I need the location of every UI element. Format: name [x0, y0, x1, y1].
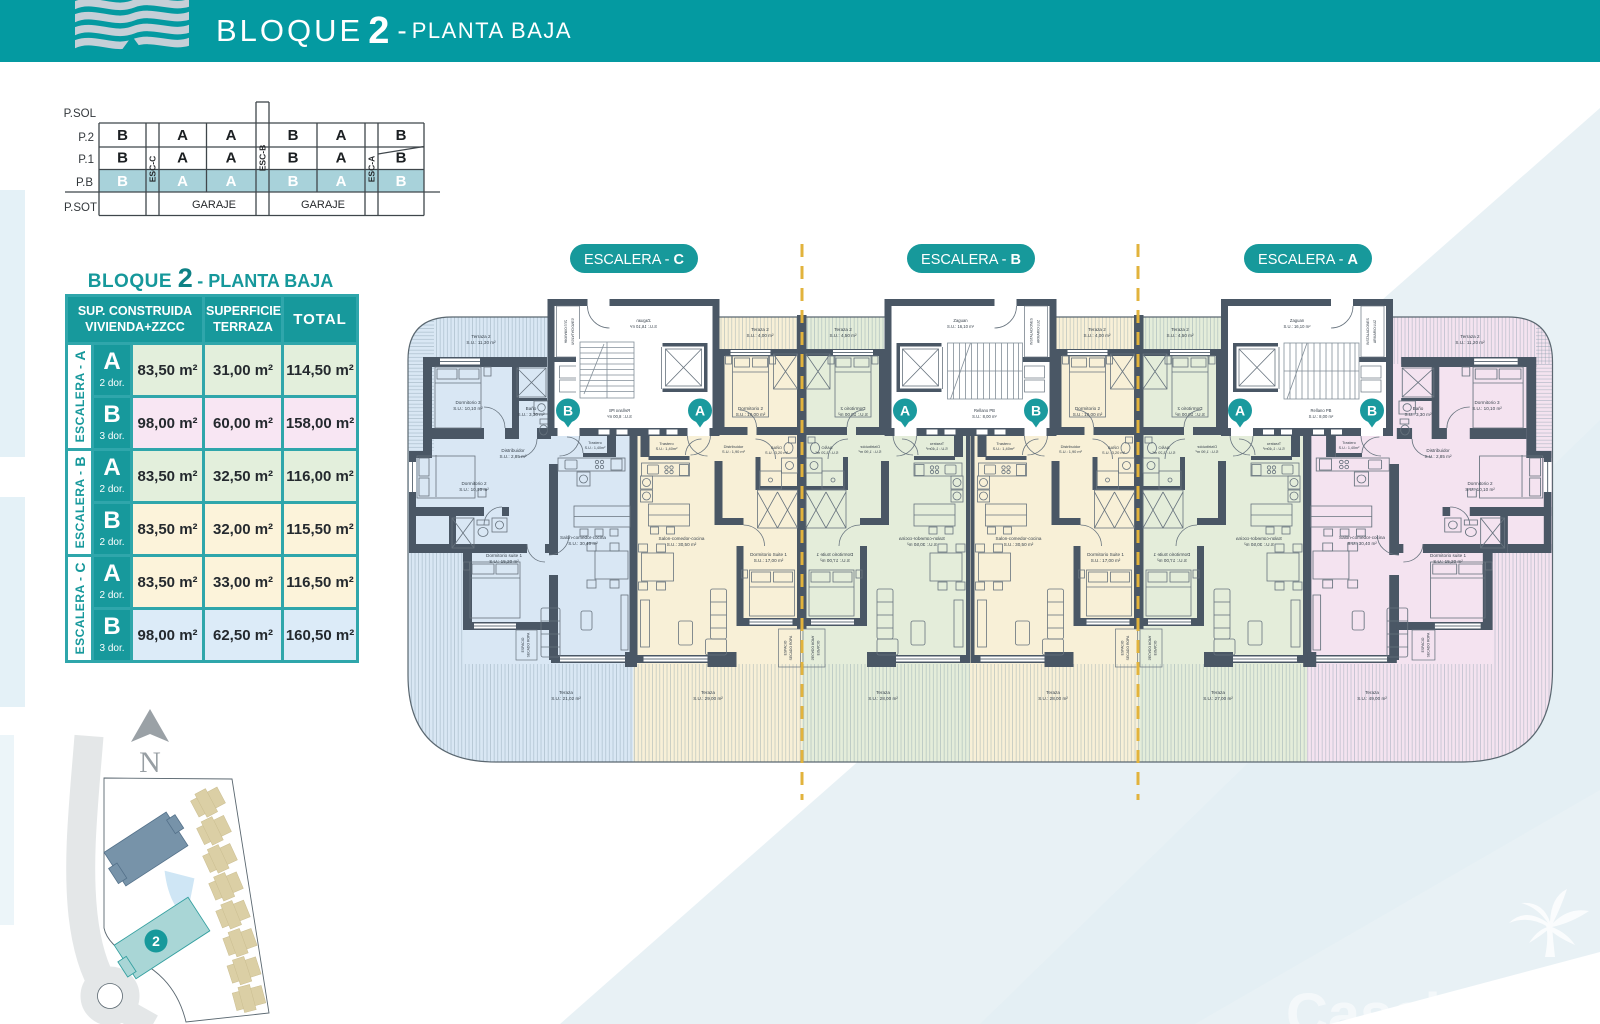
svg-text:P.SOL: P.SOL [64, 108, 97, 120]
svg-text:S.U.: 4,50 m²: S.U.: 4,50 m² [829, 333, 857, 338]
svg-text:S.U.: 30,40 m²: S.U.: 30,40 m² [1347, 541, 1377, 546]
svg-text:Teraza: Teraza [1365, 690, 1379, 695]
svg-text:Dormitorio suite 1: Dormitorio suite 1 [1430, 553, 1466, 558]
svg-text:S.U.: 11,20 m²: S.U.: 11,20 m² [1455, 340, 1485, 345]
svg-text:S.U.: 10,10 m²: S.U.: 10,10 m² [1465, 487, 1495, 492]
svg-text:B: B [117, 127, 128, 144]
svg-text:S.U.: 30,40 m²: S.U.: 30,40 m² [568, 541, 598, 546]
svg-text:ESCALERA - C: ESCALERA - C [584, 252, 684, 268]
svg-text:A: A [177, 173, 188, 190]
svg-text:A: A [177, 150, 188, 167]
svg-text:S.U.: 28,00 m²: S.U.: 28,00 m² [868, 696, 898, 701]
svg-text:S.U.: 4,00 m²: S.U.: 4,00 m² [1083, 333, 1111, 338]
svg-text:P.2: P.2 [78, 132, 94, 144]
svg-text:S.U.: 4,50 m²: S.U.: 4,50 m² [1166, 333, 1194, 338]
svg-text:B: B [396, 150, 407, 167]
svg-text:Teraza 2: Teraza 2 [1171, 327, 1189, 332]
svg-text:Baño: Baño [526, 406, 537, 411]
svg-text:S.U.: 15,20 m²: S.U.: 15,20 m² [489, 559, 519, 564]
svg-text:Dormitorio 3: Dormitorio 3 [1474, 400, 1499, 405]
svg-text:B: B [396, 173, 407, 190]
svg-text:A: A [226, 150, 237, 167]
svg-text:S.U.: 49,00 m²: S.U.: 49,00 m² [1357, 696, 1387, 701]
svg-text:Teraza 2: Teraza 2 [834, 327, 852, 332]
svg-text:ESC-C: ESC-C [148, 156, 158, 182]
svg-text:N: N [139, 746, 161, 779]
svg-text:ESC-A: ESC-A [367, 156, 377, 182]
svg-text:P.1: P.1 [78, 154, 94, 166]
svg-text:Dormitorio suite 1: Dormitorio suite 1 [486, 553, 522, 558]
svg-text:B: B [1031, 403, 1041, 419]
svg-text:GARAJE: GARAJE [301, 199, 345, 211]
svg-text:ESCALERA - B: ESCALERA - B [921, 252, 1021, 268]
svg-text:A: A [1235, 403, 1245, 419]
svg-text:Teraza: Teraza [876, 690, 890, 695]
svg-text:Teraza: Teraza [1211, 690, 1225, 695]
svg-text:Trastero: Trastero [588, 441, 602, 445]
svg-text:A: A [336, 127, 347, 144]
svg-text:S.U.: 4,00 m²: S.U.: 4,00 m² [746, 333, 774, 338]
svg-text:S.U.: 10,10 m²: S.U.: 10,10 m² [1472, 406, 1502, 411]
svg-text:SECADO ROPA: SECADO ROPA [1427, 632, 1431, 657]
svg-text:S.U.: 10,10 m²: S.U.: 10,10 m² [453, 406, 483, 411]
svg-text:Distribuidor: Distribuidor [1426, 448, 1450, 453]
svg-text:A: A [226, 127, 237, 144]
svg-text:2: 2 [152, 933, 160, 949]
svg-text:B: B [117, 150, 128, 167]
svg-text:ESCALERA - A: ESCALERA - A [1258, 252, 1358, 268]
svg-text:S.U.: 21,02 m²: S.U.: 21,02 m² [551, 696, 581, 701]
svg-text:B: B [563, 403, 573, 419]
svg-text:Terraza 2: Terraza 2 [471, 334, 491, 339]
svg-text:Dormitorio 2: Dormitorio 2 [461, 481, 486, 486]
svg-text:S.U.: 3,30 m²: S.U.: 3,30 m² [1404, 412, 1432, 417]
svg-text:A: A [900, 403, 910, 419]
svg-text:S.U.: 27,00 m²: S.U.: 27,00 m² [1203, 696, 1233, 701]
svg-text:Teraza: Teraza [559, 690, 573, 695]
svg-text:S.U.: 1,40m²: S.U.: 1,40m² [1339, 446, 1360, 450]
svg-text:A: A [695, 403, 705, 419]
svg-text:Teraza 2: Teraza 2 [751, 327, 769, 332]
svg-text:P.SOT: P.SOT [64, 202, 97, 214]
svg-text:ESPACIO: ESPACIO [521, 637, 525, 652]
svg-text:Distribuidor: Distribuidor [501, 448, 525, 453]
svg-text:S.U.: 10,10 m²: S.U.: 10,10 m² [459, 487, 489, 492]
svg-text:S.U.: 2,85 m²: S.U.: 2,85 m² [499, 454, 527, 459]
svg-text:Baño: Baño [1413, 406, 1424, 411]
svg-text:ESPACIO: ESPACIO [1421, 637, 1425, 652]
svg-text:S.U.: 2,85 m²: S.U.: 2,85 m² [1424, 454, 1452, 459]
svg-text:A: A [336, 150, 347, 167]
svg-text:S.U.: 28,00 m²: S.U.: 28,00 m² [1038, 696, 1068, 701]
svg-text:Dormitorio 2: Dormitorio 2 [1467, 481, 1492, 486]
svg-text:B: B [288, 127, 299, 144]
svg-text:B: B [117, 173, 128, 190]
svg-text:SECADO ROPA: SECADO ROPA [527, 632, 531, 657]
svg-text:A: A [336, 173, 347, 190]
svg-text:B: B [288, 173, 299, 190]
svg-text:B: B [396, 127, 407, 144]
svg-text:Dormitorio 3: Dormitorio 3 [455, 400, 480, 405]
svg-text:Casal: Casal [1286, 982, 1441, 1024]
svg-text:B: B [288, 150, 299, 167]
svg-text:Teraza: Teraza [1046, 690, 1060, 695]
svg-text:S.U.: 15,20 m²: S.U.: 15,20 m² [1433, 559, 1463, 564]
svg-text:A: A [177, 127, 188, 144]
svg-text:P.B: P.B [76, 177, 93, 189]
svg-text:Salon-comedor-cocina: Salon-comedor-cocina [560, 535, 606, 540]
svg-text:B: B [1367, 403, 1377, 419]
svg-text:Trastero: Trastero [1342, 441, 1356, 445]
svg-text:S.U.: 11,30 m²: S.U.: 11,30 m² [466, 340, 496, 345]
svg-text:A: A [226, 173, 237, 190]
svg-text:Terraza 2: Terraza 2 [1460, 334, 1480, 339]
svg-text:S.U.: 1,40m²: S.U.: 1,40m² [585, 446, 606, 450]
svg-text:Teraza 2: Teraza 2 [1088, 327, 1106, 332]
svg-text:S.U.: 29,00 m²: S.U.: 29,00 m² [693, 696, 723, 701]
svg-text:Teraza: Teraza [701, 690, 715, 695]
svg-text:S.U.: 3,30 m²: S.U.: 3,30 m² [517, 412, 545, 417]
svg-text:Salon-comedor-cocina: Salon-comedor-cocina [1339, 535, 1385, 540]
svg-text:ESC-B: ESC-B [258, 145, 268, 171]
svg-text:GARAJE: GARAJE [192, 199, 236, 211]
